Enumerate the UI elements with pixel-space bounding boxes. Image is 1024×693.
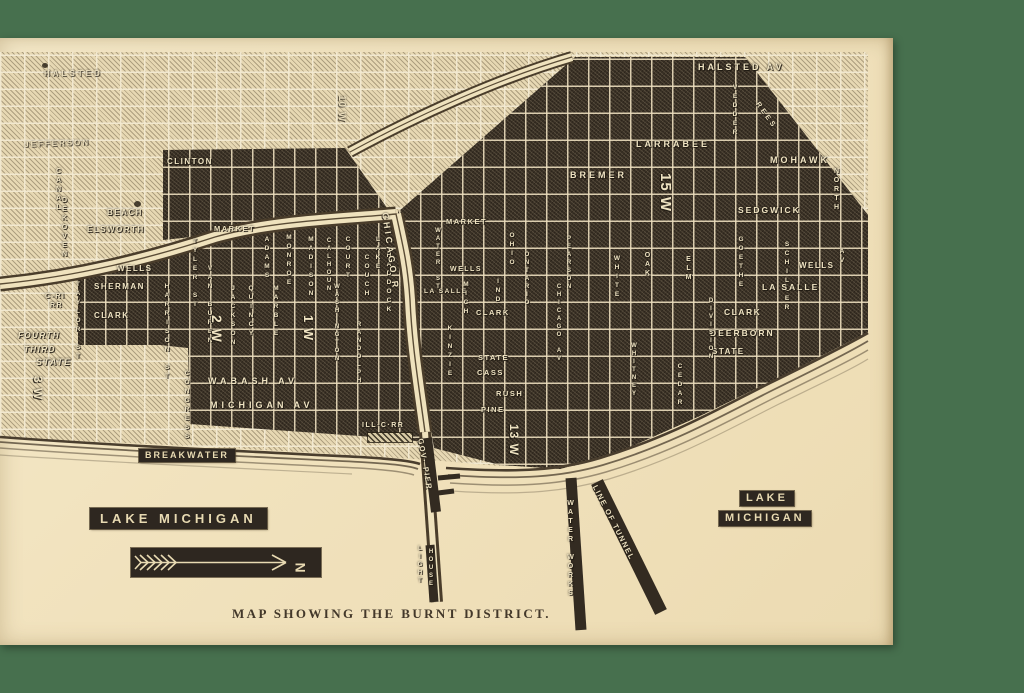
street-label-fourth: FOURTH (18, 332, 60, 340)
street-label-north: NORTH (833, 168, 840, 213)
street-label-schiller: SCHILLER (783, 241, 790, 313)
street-label-monroe: MONROE (285, 234, 292, 288)
street-label-adams: ADAMS (263, 236, 270, 281)
lake-label-lake-right: LAKE (740, 491, 794, 506)
ward-label-1w: 1 W (302, 315, 315, 341)
street-label-wabash-av: WABASH AV (208, 377, 298, 386)
street-label-white: WHITE (613, 255, 620, 300)
ink-blotch (134, 201, 141, 207)
street-label-goethe: GOETHE (737, 236, 744, 290)
street-label-water-st: WATER ST (435, 228, 441, 292)
ward-label-15w: 15 W (658, 173, 673, 212)
street-label-sherman: SHERMAN (94, 283, 145, 291)
street-label-pine: PINE (481, 406, 505, 414)
street-label-elm: ELM (685, 256, 692, 283)
street-label-market-north: MARKET (446, 218, 487, 226)
harbour-label-water-works: WATER WORKS (567, 500, 574, 599)
street-label-deerborn: DEERBORN (710, 329, 775, 338)
street-label-indiana: IND (494, 278, 501, 305)
street-label-harrison: HARRISON ST (163, 283, 170, 382)
street-label-oak: OAK (644, 252, 651, 279)
street-label-av: AV (838, 248, 845, 266)
ward-label-3w: 3 W (32, 376, 44, 400)
street-label-chicago-av: CHICAGO AV (556, 284, 562, 364)
street-label-taylor: TAYLOR ST (74, 281, 81, 362)
street-label-jackson: JACKSON (229, 285, 236, 348)
north-arrow-graphic: N (131, 548, 321, 577)
street-label-couch: COUCH (363, 254, 370, 299)
street-label-cass: CASS (477, 369, 504, 377)
street-label-larrabee: LARRABEE (636, 140, 710, 149)
map-caption: MAP SHOWING THE BURNT DISTRICT. (232, 606, 551, 622)
street-label-michigan-center: MICH (462, 281, 469, 317)
street-label-calhoun: CALHOUN (326, 238, 332, 294)
street-label-clinton: CLINTON (167, 158, 213, 166)
street-label-washington: WASHINGTON (334, 284, 340, 364)
street-label-vedder: VEDDER (731, 84, 738, 138)
street-label-rush: RUSH (496, 390, 523, 398)
ward-label-13w: 13 W (508, 424, 520, 456)
street-label-division: DIVISION (708, 298, 714, 362)
street-label-ohio: OHIO (508, 232, 515, 268)
street-label-bremer: BREMER (570, 171, 627, 180)
street-label-wells-west: WELLS (117, 265, 153, 273)
street-label-third: THIRD (24, 346, 56, 354)
scanned-map-page: HALSTED JEFFERSON C-RI RR FOURTH THIRD S… (0, 0, 1024, 693)
ink-blotch (42, 63, 48, 68)
street-label-halsted-av: HALSTED AV (698, 63, 785, 72)
street-label-state-center: STATE (478, 354, 509, 362)
street-label-whitney: WHITNEY (631, 343, 637, 399)
street-label-ontario: ONTARIO (524, 252, 530, 308)
street-label-wells-center: WELLS (450, 266, 482, 273)
street-label-kinzie: KINZIE (446, 325, 453, 379)
street-label-dekoven: DEKOVEN (61, 197, 68, 260)
street-label-court: COURT (344, 236, 351, 281)
lake-label-breakwater: BREAKWATER (139, 449, 235, 462)
street-label-lasalle-center: LA SALLE (424, 289, 468, 296)
street-label-sedgwick: SEDGWICK (738, 206, 801, 215)
street-label-clark-west: CLARK (94, 312, 130, 320)
street-label-pearson: PEARSON (566, 236, 572, 292)
street-label-randolph: RANDOLPH (356, 322, 362, 386)
street-label-quincy: QUINCY (247, 285, 254, 339)
street-label-state-west: STATE (36, 358, 72, 367)
street-label-lake: LAKE (374, 236, 381, 272)
street-label-cedar: CEDAR (676, 363, 683, 408)
street-label-wells-north: WELLS (799, 262, 835, 270)
street-label-marble: MARBLE (272, 285, 279, 339)
street-label-c-ri-rr: C-RI (45, 293, 65, 300)
street-label-tyler: TYLER ST (191, 238, 198, 310)
lake-label-lake-michigan-left: LAKE MICHIGAN (90, 508, 267, 529)
north-arrow: N (131, 548, 321, 577)
ill-c-rr-depot-hatch (368, 433, 412, 442)
street-label-elsworth: ELSWORTH (87, 226, 145, 234)
harbour-label-house: HOUSE (428, 549, 434, 589)
street-label-beach: BEACH (107, 209, 143, 217)
street-label-mohawk: MOHAWK (770, 156, 830, 165)
street-label-congress: CONGRESS (183, 370, 190, 442)
railroad-label-ill-c-rr: ILL·C·RR (362, 422, 404, 429)
street-label-lasalle-north: LA SALLE (762, 283, 819, 292)
street-label-clark-center: CLARK (476, 309, 510, 317)
ward-label-2w: 2 W (210, 315, 224, 343)
street-label-michigan-av: MICHIGAN AV (210, 401, 314, 410)
street-label-madison: MADISON (307, 236, 314, 299)
street-label-market-west: MARKET (214, 225, 255, 233)
street-label-state-north: STATE (712, 348, 745, 356)
ward-label-10w: 10 W (336, 95, 346, 122)
north-letter: N (293, 563, 309, 573)
lake-label-michigan-right: MICHIGAN (719, 511, 811, 526)
street-label-clark-north: CLARK (724, 308, 761, 317)
street-label-halsted-west: HALSTED (44, 70, 103, 78)
harbour-label-light: LIGHT (417, 546, 423, 586)
street-label-rr: RR (50, 302, 63, 309)
